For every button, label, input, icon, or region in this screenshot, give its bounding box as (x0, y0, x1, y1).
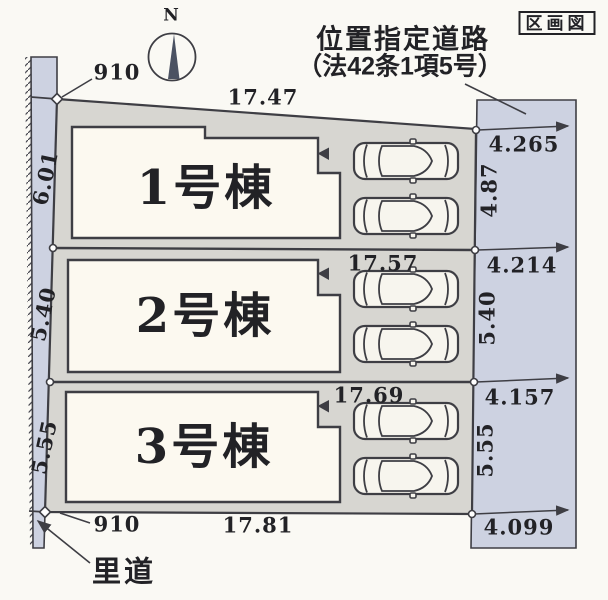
car-top-view-icon (354, 194, 458, 238)
site-plan: N 区画図 位置指定道路 （法42条1項5号） 910 17.47 6.01 5… (0, 0, 608, 600)
left-road-leader (38, 521, 90, 563)
dim-right-width-1: 4.265 (489, 134, 560, 155)
top-offset-leader (62, 79, 92, 97)
boundary-node (47, 379, 54, 386)
dim-right-depth-2: 5.40 (477, 290, 498, 345)
left-road-name: 里道 (92, 559, 156, 588)
dim-bottom-width: 17.81 (223, 515, 294, 536)
building-2-label: 2号棟 (136, 292, 274, 340)
dim-right-depth-3: 5.55 (475, 422, 496, 477)
dim-right-width-4: 4.099 (484, 517, 555, 538)
boundary-node (473, 127, 480, 134)
bottom-offset-leader (60, 513, 90, 523)
dim-bottom-offset: 910 (94, 514, 141, 535)
dim-top-offset: 910 (94, 62, 141, 83)
car-top-view-icon (354, 454, 458, 498)
dim-row2-width: 17.57 (348, 253, 419, 274)
north-compass-icon (149, 34, 196, 81)
site-plan-drawing (0, 0, 608, 600)
dim-right-width-2: 4.214 (487, 255, 558, 276)
dim-right-width-3: 4.157 (485, 387, 556, 408)
plan-type-badge: 区画図 (519, 11, 596, 35)
building-1-label: 1号棟 (137, 164, 275, 212)
compass-north-label: N (163, 8, 179, 25)
dim-right-depth-1: 4.87 (479, 162, 500, 217)
boundary-node (471, 379, 478, 386)
boundary-node (472, 247, 479, 254)
car-top-view-icon (354, 322, 458, 366)
car-top-view-icon (354, 139, 458, 183)
top-road-law-ref: （法42条1項5号） (297, 55, 503, 80)
boundary-node (50, 245, 57, 252)
building-3-label: 3号棟 (135, 423, 273, 471)
dim-top-width: 17.47 (228, 87, 299, 108)
top-road-name: 位置指定道路 (316, 27, 490, 54)
dim-row3-width: 17.69 (334, 385, 405, 406)
boundary-node (469, 511, 476, 518)
